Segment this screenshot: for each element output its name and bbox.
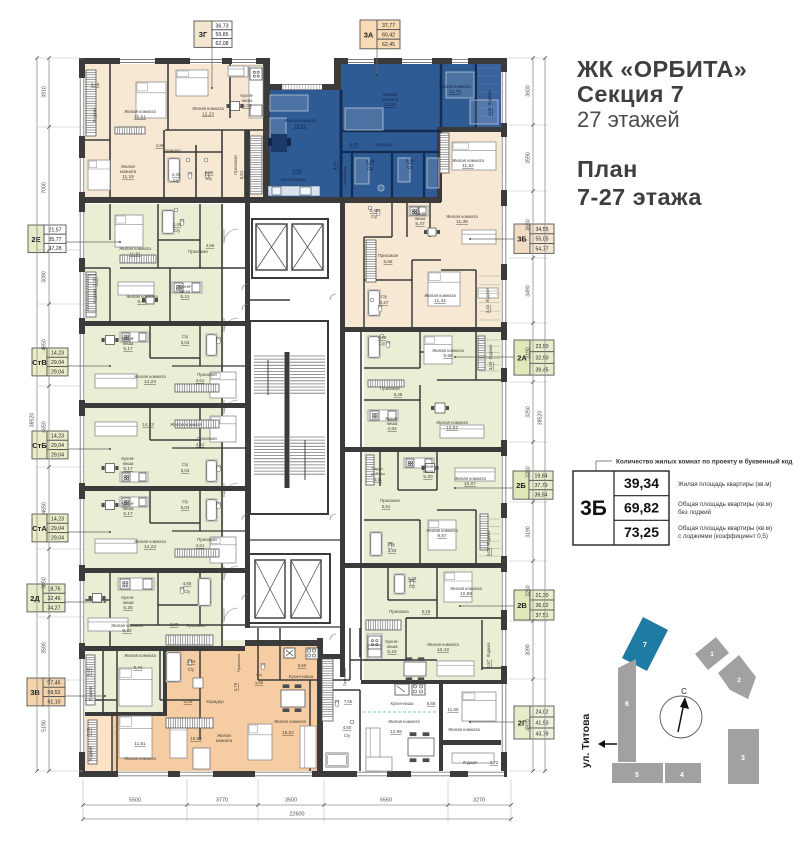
svg-text:Лоджия: Лоджия [92, 289, 97, 304]
svg-text:2Б: 2Б [516, 481, 526, 490]
svg-text:5,47: 5,47 [415, 221, 425, 227]
svg-text:5,03: 5,03 [181, 468, 190, 473]
svg-text:Коридор: Коридор [375, 142, 393, 147]
svg-text:С/у: С/у [182, 462, 189, 467]
svg-text:3: 3 [741, 755, 745, 762]
svg-text:3,44: 3,44 [485, 304, 490, 313]
svg-text:3090: 3090 [42, 271, 48, 283]
svg-text:14,23: 14,23 [144, 379, 156, 385]
svg-text:4,45: 4,45 [173, 222, 182, 227]
svg-text:29,04: 29,04 [51, 443, 64, 449]
svg-text:37,51: 37,51 [536, 613, 549, 619]
svg-text:3250: 3250 [526, 466, 532, 478]
svg-text:5,03: 5,03 [242, 103, 252, 109]
svg-text:без лоджий: без лоджий [678, 509, 712, 516]
svg-text:5500: 5500 [129, 798, 141, 804]
svg-text:Прихожая: Прихожая [197, 372, 216, 377]
svg-text:32,46: 32,46 [48, 596, 61, 602]
svg-text:4,46: 4,46 [91, 82, 100, 87]
svg-text:СтА: СтА [32, 524, 47, 533]
svg-text:С/у: С/у [256, 672, 262, 677]
svg-text:11,44: 11,44 [434, 298, 446, 304]
svg-text:3850: 3850 [42, 577, 48, 589]
svg-text:1: 1 [710, 651, 714, 658]
svg-text:Прихожая: Прихожая [233, 155, 238, 174]
svg-text:34,55: 34,55 [536, 227, 549, 233]
svg-text:5,20: 5,20 [423, 474, 433, 480]
svg-text:ниша: ниша [123, 506, 134, 511]
svg-text:5190: 5190 [42, 720, 48, 732]
svg-text:35,77: 35,77 [49, 237, 62, 243]
svg-text:55,05: 55,05 [536, 237, 549, 243]
svg-text:14,23: 14,23 [51, 434, 64, 440]
svg-text:6,02: 6,02 [350, 142, 359, 147]
svg-text:3270: 3270 [473, 798, 485, 804]
svg-text:Жилая комната: Жилая комната [424, 293, 456, 298]
svg-text:14,23: 14,23 [144, 544, 156, 550]
svg-text:ЖК «ОРБИТА»: ЖК «ОРБИТА» [576, 56, 747, 82]
svg-text:23,50: 23,50 [536, 344, 549, 350]
svg-text:39,34: 39,34 [624, 475, 659, 491]
svg-text:ниша: ниша [415, 216, 426, 221]
svg-text:Прихожая: Прихожая [380, 386, 399, 391]
svg-text:4,55: 4,55 [183, 581, 192, 586]
svg-text:10,42: 10,42 [437, 647, 449, 653]
svg-text:14,23: 14,23 [51, 517, 64, 523]
svg-text:3490: 3490 [526, 285, 532, 297]
svg-text:ниша: ниша [387, 421, 398, 426]
svg-text:12,20: 12,20 [384, 102, 396, 108]
svg-text:Количество жилых комнат по про: Количество жилых комнат по проекту и бук… [616, 458, 792, 466]
svg-text:59,52: 59,52 [48, 690, 61, 696]
svg-text:6,09: 6,09 [184, 699, 193, 704]
svg-text:ниша: ниша [387, 644, 398, 649]
svg-text:5,50: 5,50 [298, 663, 307, 668]
svg-text:3,55: 3,55 [86, 727, 91, 736]
svg-text:Жилая комната: Жилая комната [436, 420, 468, 425]
svg-text:59,85: 59,85 [216, 32, 229, 38]
svg-text:11,52: 11,52 [462, 163, 474, 169]
svg-text:54,77: 54,77 [536, 247, 549, 253]
svg-text:С/у: С/у [174, 228, 181, 233]
svg-text:19,64: 19,64 [535, 474, 548, 480]
svg-text:1,65: 1,65 [255, 680, 264, 685]
svg-text:11,39: 11,39 [456, 219, 468, 225]
svg-text:С/у: С/у [206, 176, 213, 181]
svg-text:3590: 3590 [42, 642, 48, 654]
svg-text:Лоджия: Лоджия [88, 687, 93, 702]
svg-text:14,23: 14,23 [51, 351, 64, 357]
svg-text:С/у: С/у [381, 294, 388, 299]
svg-text:3500: 3500 [285, 798, 297, 804]
svg-text:34,27: 34,27 [48, 605, 61, 611]
svg-text:4650: 4650 [42, 502, 48, 514]
svg-text:С/у: С/у [182, 334, 189, 339]
svg-text:4650: 4650 [42, 339, 48, 351]
svg-text:С/у: С/у [379, 341, 386, 346]
svg-text:Жилая комната: Жилая комната [124, 653, 156, 658]
svg-text:Кухня-ниша: Кухня-ниша [281, 177, 306, 182]
svg-text:6,56: 6,56 [384, 259, 393, 264]
svg-text:11,61: 11,61 [134, 741, 146, 746]
svg-text:Жилая комната: Жилая комната [432, 348, 464, 353]
svg-text:5,17: 5,17 [123, 346, 133, 352]
svg-text:10,82: 10,82 [190, 736, 202, 741]
svg-text:7,66: 7,66 [344, 699, 353, 704]
svg-text:2,19: 2,19 [366, 159, 375, 164]
svg-text:3,11: 3,11 [374, 477, 383, 482]
svg-text:9,32: 9,32 [122, 628, 132, 634]
svg-text:Прихожая: Прихожая [342, 668, 347, 687]
svg-text:3190: 3190 [526, 347, 532, 359]
svg-text:ниша: ниша [123, 600, 134, 605]
svg-text:Жилая комната: Жилая комната [111, 623, 143, 628]
svg-text:5,48: 5,48 [394, 392, 403, 397]
svg-text:комната: комната [382, 97, 399, 102]
svg-text:60,42: 60,42 [382, 32, 395, 38]
svg-text:СтБ: СтБ [32, 441, 47, 450]
svg-text:5,62: 5,62 [86, 667, 91, 676]
svg-text:62,08: 62,08 [216, 41, 229, 47]
svg-text:3,02: 3,02 [92, 277, 97, 286]
svg-text:37,45: 37,45 [48, 681, 61, 687]
svg-text:Прихожая: Прихожая [342, 167, 347, 186]
svg-text:61,10: 61,10 [48, 699, 61, 705]
svg-text:3,72: 3,72 [490, 760, 499, 765]
svg-text:Жилая комната: Жилая комната [439, 84, 471, 89]
svg-text:3600: 3600 [526, 85, 532, 97]
svg-text:4,64: 4,64 [387, 426, 397, 432]
svg-text:2,40: 2,40 [370, 208, 379, 213]
svg-text:Лоджия: Лоджия [486, 531, 491, 546]
svg-text:3590: 3590 [526, 152, 532, 164]
svg-text:36,02: 36,02 [536, 603, 549, 609]
svg-text:3,90: 3,90 [170, 622, 179, 627]
svg-text:Жилая площадь квартиры (кв.м): Жилая площадь квартиры (кв.м) [678, 481, 772, 488]
svg-text:Прихожая: Прихожая [378, 253, 399, 258]
svg-text:6560: 6560 [380, 798, 392, 804]
svg-text:4,05: 4,05 [487, 107, 492, 116]
svg-text:3650: 3650 [526, 219, 532, 231]
svg-text:3770: 3770 [216, 798, 228, 804]
svg-text:3,45: 3,45 [332, 161, 337, 170]
svg-text:ниша: ниша [123, 341, 134, 346]
svg-text:5,17: 5,17 [123, 511, 133, 517]
svg-text:10,88: 10,88 [460, 591, 472, 597]
svg-text:38520: 38520 [538, 411, 544, 426]
svg-text:5: 5 [635, 772, 639, 779]
svg-text:2: 2 [737, 677, 741, 684]
svg-text:Жилая комната: Жилая комната [427, 642, 459, 647]
svg-text:9,57: 9,57 [437, 533, 447, 539]
svg-text:ниша: ниша [242, 98, 253, 103]
svg-text:11,19: 11,19 [122, 174, 134, 180]
svg-text:21,30: 21,30 [536, 593, 549, 599]
svg-text:С/у: С/у [173, 178, 180, 183]
svg-text:ниша: ниша [123, 461, 134, 466]
svg-text:Жилая комната: Жилая комната [284, 118, 316, 123]
svg-text:с лоджиями (коэффициент 0,5): с лоджиями (коэффициент 0,5) [678, 533, 768, 540]
svg-text:6: 6 [625, 701, 629, 708]
svg-text:Секция 7: Секция 7 [577, 81, 684, 107]
svg-text:Жилая комната: Жилая комната [170, 422, 202, 427]
svg-text:7-27 этажа: 7-27 этажа [577, 184, 702, 210]
svg-text:3090: 3090 [526, 644, 532, 656]
svg-text:С: С [681, 687, 687, 696]
svg-text:Лоджия: Лоджия [485, 288, 490, 303]
svg-text:Прихожая: Прихожая [188, 249, 207, 254]
svg-text:15,02: 15,02 [282, 730, 294, 735]
svg-text:Прихожая: Прихожая [186, 623, 205, 628]
svg-text:62,45: 62,45 [382, 42, 395, 48]
svg-text:Жилая комната: Жилая комната [124, 109, 156, 114]
svg-text:22600: 22600 [290, 812, 305, 818]
svg-text:Прихожая: Прихожая [197, 537, 216, 542]
svg-text:3Б: 3Б [517, 235, 527, 244]
svg-text:39,54: 39,54 [535, 493, 548, 499]
svg-text:11,91: 11,91 [129, 251, 141, 257]
svg-text:15,51: 15,51 [134, 114, 146, 120]
svg-text:5,79: 5,79 [233, 682, 238, 691]
svg-text:7: 7 [643, 642, 647, 649]
svg-text:Лоджия: Лоджия [92, 108, 97, 123]
svg-text:СтВ: СтВ [32, 358, 47, 367]
svg-text:С/у: С/у [367, 166, 374, 171]
svg-text:Кухня-ниша: Кухня-ниша [289, 674, 314, 679]
svg-text:С/у: С/у [184, 589, 191, 594]
svg-text:Жилая комната: Жилая комната [134, 539, 166, 544]
svg-text:Жилая комната: Жилая комната [126, 294, 158, 299]
svg-text:Жилая комната: Жилая комната [426, 528, 458, 533]
svg-text:4,61: 4,61 [196, 442, 205, 447]
svg-text:комната: комната [216, 738, 233, 743]
svg-text:4,28: 4,28 [378, 335, 387, 340]
svg-text:10,07: 10,07 [464, 481, 476, 487]
svg-text:3,09: 3,09 [488, 361, 493, 370]
svg-text:2Е: 2Е [31, 235, 40, 244]
svg-text:2В: 2В [517, 601, 527, 610]
svg-text:29,04: 29,04 [51, 526, 64, 532]
svg-text:Жилая комната: Жилая комната [448, 727, 480, 732]
svg-text:4,27: 4,27 [380, 300, 389, 305]
svg-text:41,93: 41,93 [536, 721, 549, 727]
svg-text:69,82: 69,82 [624, 500, 659, 516]
svg-text:3Б: 3Б [580, 497, 607, 520]
svg-text:5,11: 5,11 [181, 294, 190, 300]
svg-text:Лоджия: Лоджия [486, 643, 491, 658]
svg-text:3910: 3910 [42, 86, 48, 98]
svg-text:2,87: 2,87 [486, 659, 491, 668]
svg-text:29,04: 29,04 [51, 535, 64, 541]
svg-text:4,84: 4,84 [187, 659, 196, 664]
svg-text:С/у: С/у [407, 165, 414, 170]
svg-text:Жилая комната: Жилая комната [274, 719, 306, 724]
svg-text:2Д: 2Д [30, 594, 40, 603]
svg-text:С/у: С/у [371, 214, 378, 219]
svg-text:21,57: 21,57 [49, 228, 62, 234]
svg-text:С/у: С/у [182, 499, 189, 504]
svg-text:ул. Титова: ул. Титова [580, 714, 592, 768]
svg-text:Жилая комната: Жилая комната [119, 246, 151, 251]
svg-text:5,91: 5,91 [382, 504, 391, 509]
svg-text:Жилая комната: Жилая комната [452, 158, 484, 163]
svg-text:4,60: 4,60 [343, 725, 352, 730]
svg-text:ниша: ниша [423, 469, 434, 474]
svg-text:Прихожая: Прихожая [197, 436, 216, 441]
svg-text:11,76: 11,76 [449, 89, 461, 95]
svg-text:5,19: 5,19 [422, 609, 431, 614]
svg-text:Общая площадь квартиры (кв.м): Общая площадь квартиры (кв.м) [678, 501, 772, 508]
svg-text:32,90: 32,90 [536, 356, 549, 362]
svg-text:37,77: 37,77 [382, 23, 395, 29]
svg-text:Жилая комната: Жилая комната [446, 214, 478, 219]
svg-text:11,06: 11,06 [447, 707, 459, 712]
svg-text:4,61: 4,61 [196, 378, 205, 383]
svg-text:Лоджия: Лоджия [88, 747, 93, 762]
svg-text:18,76: 18,76 [48, 587, 61, 593]
svg-text:3190: 3190 [526, 526, 532, 538]
svg-text:комната: комната [120, 169, 137, 174]
svg-text:Жилая комната: Жилая комната [454, 476, 486, 481]
svg-text:5,24: 5,24 [387, 649, 397, 655]
svg-text:С/у: С/у [389, 542, 396, 547]
svg-text:37,79: 37,79 [535, 483, 548, 489]
svg-text:3Г: 3Г [199, 30, 208, 39]
svg-text:5,03: 5,03 [181, 340, 190, 345]
svg-text:12,23: 12,23 [202, 111, 214, 117]
svg-text:Коридор: Коридор [206, 699, 224, 704]
svg-text:Общая площадь квартиры (кв.м): Общая площадь квартиры (кв.м) [678, 525, 772, 532]
svg-text:План: План [577, 156, 638, 182]
svg-text:4650: 4650 [42, 421, 48, 433]
svg-text:3В: 3В [30, 688, 40, 697]
svg-text:Жилая комната: Жилая комната [450, 586, 482, 591]
svg-text:6,55: 6,55 [293, 168, 302, 173]
svg-text:Прихожая: Прихожая [236, 654, 241, 673]
svg-text:3250: 3250 [526, 585, 532, 597]
svg-text:29,04: 29,04 [51, 360, 64, 366]
svg-text:3А: 3А [364, 30, 374, 39]
svg-text:36,73: 36,73 [216, 23, 229, 29]
svg-text:29,04: 29,04 [51, 452, 64, 458]
svg-text:С/у: С/у [344, 733, 351, 738]
svg-text:Прихожая: Прихожая [389, 609, 408, 614]
svg-text:4,29: 4,29 [408, 576, 417, 581]
svg-text:Прихожая: Прихожая [380, 498, 399, 503]
svg-text:Жилая комната: Жилая комната [124, 756, 156, 761]
svg-text:С/у: С/у [188, 667, 195, 672]
svg-text:Кухня-ниша: Кухня-ниша [391, 701, 415, 706]
svg-text:3250: 3250 [526, 406, 532, 418]
svg-text:13,92: 13,92 [446, 425, 458, 431]
svg-text:73,25: 73,25 [624, 524, 659, 540]
svg-text:Жилая комната: Жилая комната [388, 719, 420, 724]
svg-text:9,58: 9,58 [443, 353, 453, 359]
svg-text:Коридор: Коридор [163, 148, 181, 153]
svg-text:29,04: 29,04 [51, 369, 64, 375]
svg-text:5,17: 5,17 [123, 466, 133, 472]
svg-text:9,44: 9,44 [134, 665, 143, 670]
svg-text:14,23: 14,23 [142, 422, 154, 427]
svg-text:4,45: 4,45 [172, 172, 181, 177]
svg-text:Лоджия: Лоджия [487, 91, 492, 106]
svg-text:5,09: 5,09 [486, 547, 491, 556]
svg-text:7000: 7000 [42, 182, 48, 194]
svg-text:13,81: 13,81 [294, 123, 306, 129]
svg-text:3,93: 3,93 [388, 548, 397, 553]
svg-text:9,66: 9,66 [137, 299, 147, 305]
svg-text:С/у: С/у [409, 584, 416, 589]
svg-text:27 этажей: 27 этажей [577, 107, 680, 132]
svg-text:4,61: 4,61 [196, 543, 205, 548]
svg-text:робная: робная [371, 471, 384, 476]
svg-text:24,02: 24,02 [536, 710, 549, 716]
svg-text:39,45: 39,45 [536, 367, 549, 373]
svg-text:43,79: 43,79 [536, 732, 549, 738]
svg-text:38520: 38520 [30, 413, 36, 428]
svg-text:Жилая комната: Жилая комната [192, 106, 224, 111]
svg-text:Жилая комната: Жилая комната [134, 374, 166, 379]
svg-text:5,65: 5,65 [427, 701, 436, 706]
svg-text:4: 4 [680, 772, 684, 779]
svg-text:Лоджия: Лоджия [463, 760, 478, 765]
svg-text:5,25: 5,25 [123, 605, 133, 611]
svg-text:5,81: 5,81 [239, 170, 244, 179]
svg-text:5,03: 5,03 [181, 505, 190, 510]
svg-text:4,66: 4,66 [206, 243, 215, 248]
svg-text:2,96: 2,96 [205, 170, 214, 175]
svg-text:4970: 4970 [526, 719, 532, 731]
svg-text:12,96: 12,96 [390, 729, 402, 734]
svg-text:4,44: 4,44 [406, 158, 415, 163]
svg-text:ниша: ниша [180, 289, 191, 294]
svg-text:4,86: 4,86 [156, 143, 165, 148]
